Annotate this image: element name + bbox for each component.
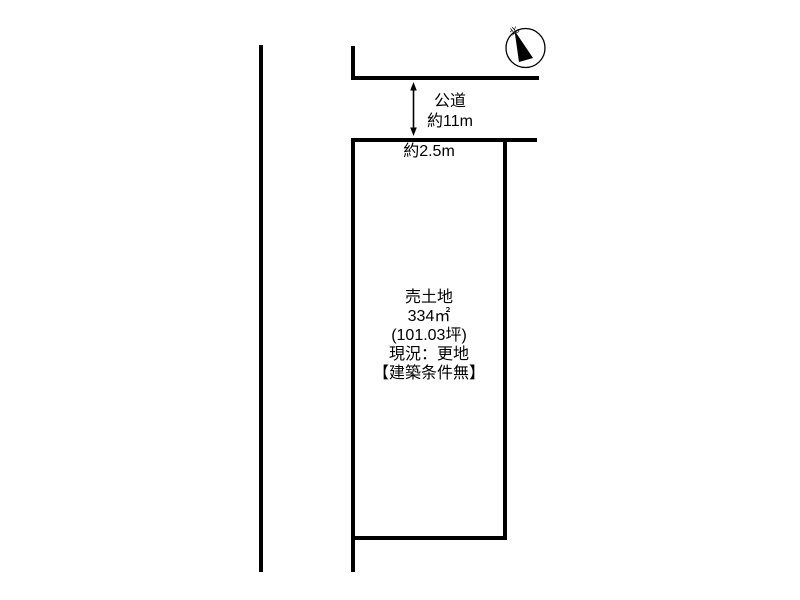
parcel-area-sqm: 334㎡ bbox=[353, 307, 505, 326]
road-name-label: 公道 bbox=[410, 92, 490, 111]
frontage-width-label: 約2.5m bbox=[389, 142, 469, 161]
arrow-head-up-icon bbox=[410, 82, 417, 91]
parcel-condition-note: 【建築条件無】 bbox=[353, 364, 505, 383]
land-plot-diagram: 北 公道 約11m 約2.5m 売土地 334㎡ (101.03坪) 現況：更地… bbox=[0, 0, 800, 600]
road-width-label: 約11m bbox=[405, 112, 495, 131]
parcel-status: 現況：更地 bbox=[353, 345, 505, 364]
parcel-area-tsubo: (101.03坪) bbox=[353, 326, 505, 345]
parcel-type-label: 売土地 bbox=[353, 288, 505, 307]
north-compass-icon: 北 bbox=[506, 24, 545, 67]
compass-needle bbox=[515, 31, 534, 63]
parcel-info: 売土地 334㎡ (101.03坪) 現況：更地 【建築条件無】 bbox=[353, 288, 505, 383]
